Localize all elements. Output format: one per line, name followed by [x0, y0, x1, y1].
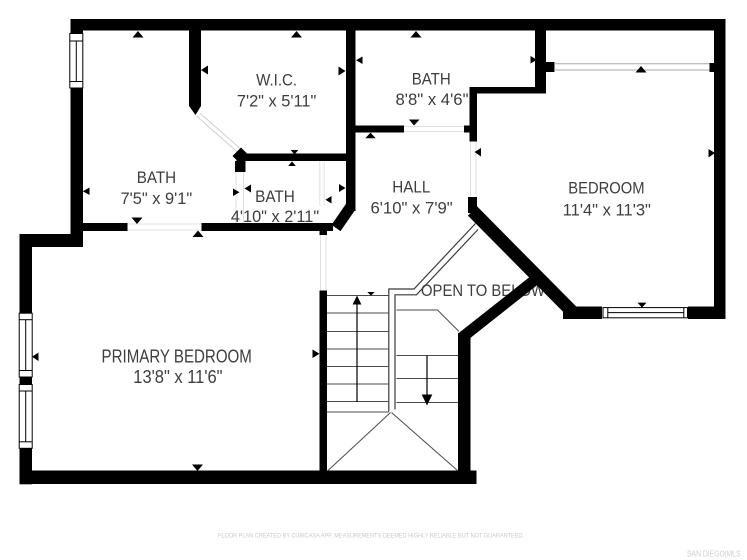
svg-text:BATH: BATH [412, 69, 451, 88]
svg-text:4'10" x 2'11": 4'10" x 2'11" [231, 207, 319, 226]
svg-text:6'10" x 7'9": 6'10" x 7'9" [370, 199, 452, 218]
svg-text:13'8" x 11'6": 13'8" x 11'6" [133, 366, 222, 387]
svg-text:7'5" x 9'1": 7'5" x 9'1" [121, 189, 193, 208]
svg-text:7'2" x 5'11": 7'2" x 5'11" [237, 92, 317, 111]
svg-text:BATH: BATH [255, 187, 295, 206]
svg-text:FLOOR PLAN CREATED BY CUBICASA: FLOOR PLAN CREATED BY CUBICASA APP. MEAS… [218, 533, 524, 540]
svg-text:SAN DIEGO|MLS: SAN DIEGO|MLS [687, 550, 741, 559]
svg-text:PRIMARY BEDROOM: PRIMARY BEDROOM [102, 346, 252, 367]
svg-text:BATH: BATH [137, 168, 176, 187]
svg-text:HALL: HALL [392, 178, 430, 197]
svg-text:BEDROOM: BEDROOM [568, 179, 644, 198]
svg-text:8'8" x 4'6": 8'8" x 4'6" [396, 90, 469, 109]
svg-text:W.I.C.: W.I.C. [256, 71, 297, 90]
svg-text:11'4" x 11'3": 11'4" x 11'3" [563, 201, 651, 220]
